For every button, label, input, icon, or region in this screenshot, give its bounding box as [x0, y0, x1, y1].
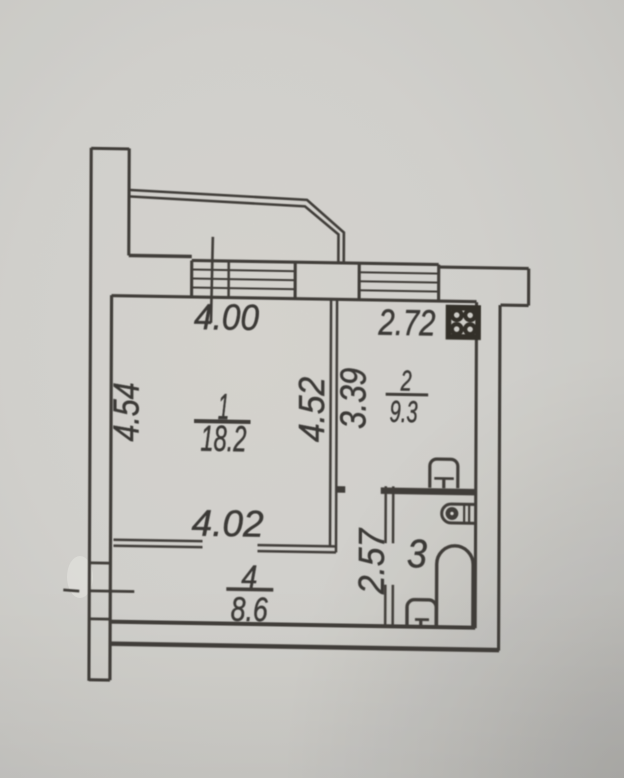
svg-text:9.3: 9.3	[390, 394, 418, 429]
svg-text:4.00: 4.00	[194, 296, 259, 338]
svg-text:4.54: 4.54	[105, 382, 146, 442]
svg-text:4.52: 4.52	[291, 377, 332, 443]
svg-text:8.6: 8.6	[231, 591, 268, 630]
svg-text:3.39: 3.39	[332, 368, 373, 430]
svg-text:2: 2	[400, 365, 412, 397]
svg-text:2.72: 2.72	[378, 302, 436, 344]
svg-text:2.57: 2.57	[351, 527, 392, 595]
svg-text:4.02: 4.02	[192, 502, 265, 544]
svg-text:3: 3	[407, 532, 427, 576]
